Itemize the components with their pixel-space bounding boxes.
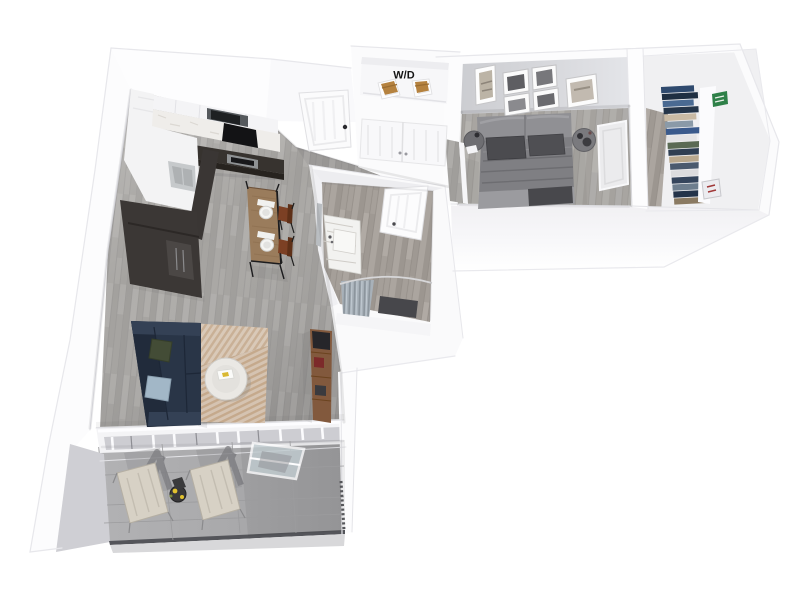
svg-text:W/D: W/D: [393, 70, 414, 82]
